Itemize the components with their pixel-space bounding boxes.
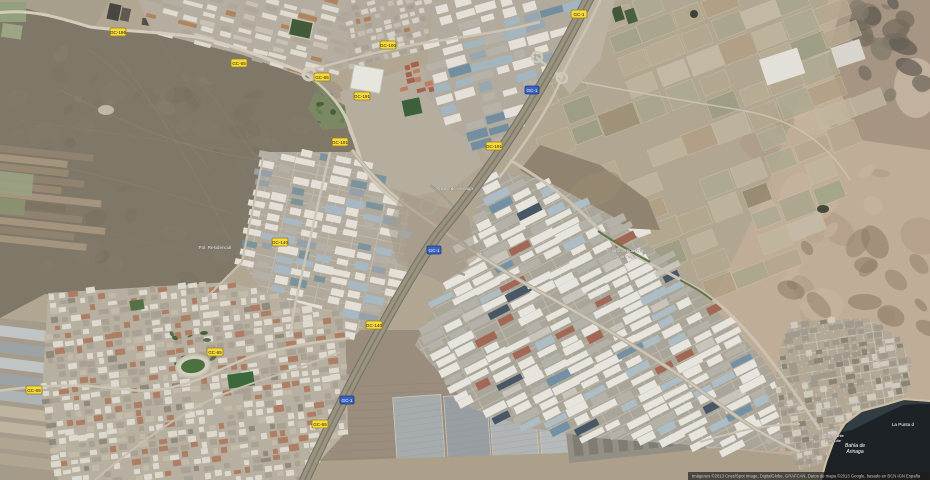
svg-text:Nanquite: Nanquite: [825, 438, 842, 443]
svg-text:Cruce de Arinaga: Cruce de Arinaga: [437, 186, 473, 191]
svg-text:GC-1: GC-1: [527, 88, 538, 93]
svg-text:La Punta d: La Punta d: [892, 422, 915, 427]
svg-text:GC-65: GC-65: [208, 350, 222, 355]
svg-text:GC-1: GC-1: [574, 12, 585, 17]
svg-text:GC-196: GC-196: [110, 30, 127, 35]
svg-text:GC-1: GC-1: [342, 398, 353, 403]
svg-text:Polígono Industrial: Polígono Industrial: [606, 248, 644, 253]
svg-text:GC-1: GC-1: [429, 248, 440, 253]
svg-text:GC-100: GC-100: [380, 43, 397, 48]
svg-text:GC-140: GC-140: [272, 240, 289, 245]
svg-text:GC-65: GC-65: [232, 61, 246, 66]
svg-text:de Arinaga: de Arinaga: [614, 254, 636, 259]
svg-text:Arinaga: Arinaga: [845, 449, 863, 455]
svg-text:GC-191: GC-191: [332, 140, 349, 145]
svg-text:GC-191: GC-191: [486, 144, 503, 149]
svg-text:GC-140: GC-140: [366, 323, 383, 328]
svg-text:Pol. Residencial: Pol. Residencial: [199, 245, 232, 250]
svg-text:Imágenes ©2013 Cnes/Spot Image: Imágenes ©2013 Cnes/Spot Image, DigitalG…: [692, 474, 921, 479]
svg-text:GC-65: GC-65: [27, 388, 41, 393]
svg-text:GC-65: GC-65: [313, 422, 327, 427]
svg-text:GC-191: GC-191: [354, 94, 371, 99]
svg-text:GC-65: GC-65: [315, 75, 329, 80]
